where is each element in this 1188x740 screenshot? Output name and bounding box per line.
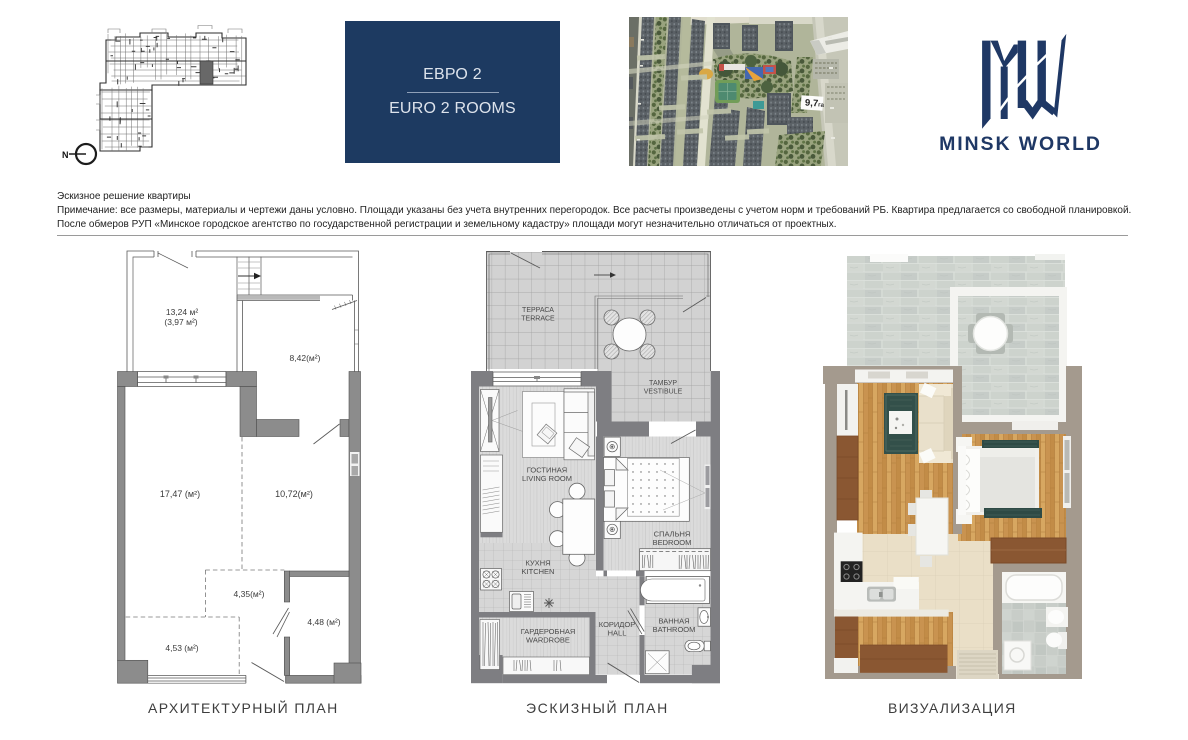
svg-text:BEDROOM: BEDROOM: [653, 538, 692, 547]
svg-text:BATHROOM: BATHROOM: [653, 625, 696, 634]
svg-text:TERRACE: TERRACE: [521, 316, 555, 323]
svg-text:13,24 м²: 13,24 м²: [166, 307, 198, 317]
svg-text:LIVING ROOM: LIVING ROOM: [522, 474, 572, 483]
svg-text:17,47 (м²): 17,47 (м²): [160, 489, 200, 499]
svg-text:MINSK WORLD: MINSK WORLD: [939, 133, 1102, 155]
svg-text:4,53 (м²): 4,53 (м²): [165, 643, 198, 653]
svg-text:ТЕРРАСА: ТЕРРАСА: [522, 307, 554, 314]
svg-text:VESTIBULE: VESTIBULE: [644, 389, 683, 396]
svg-text:HALL: HALL: [608, 629, 627, 638]
svg-text:8,42(м²): 8,42(м²): [290, 353, 321, 363]
svg-text:4,48 (м²): 4,48 (м²): [307, 617, 340, 627]
svg-text:10,72(м²): 10,72(м²): [275, 489, 313, 499]
svg-text:(3,97 м²): (3,97 м²): [164, 317, 197, 327]
svg-text:4,35(м²): 4,35(м²): [234, 589, 265, 599]
svg-text:N: N: [62, 150, 69, 160]
svg-text:WARDROBE: WARDROBE: [526, 636, 570, 645]
svg-text:ТАМБУР: ТАМБУР: [649, 380, 677, 387]
svg-text:KITCHEN: KITCHEN: [522, 567, 555, 576]
